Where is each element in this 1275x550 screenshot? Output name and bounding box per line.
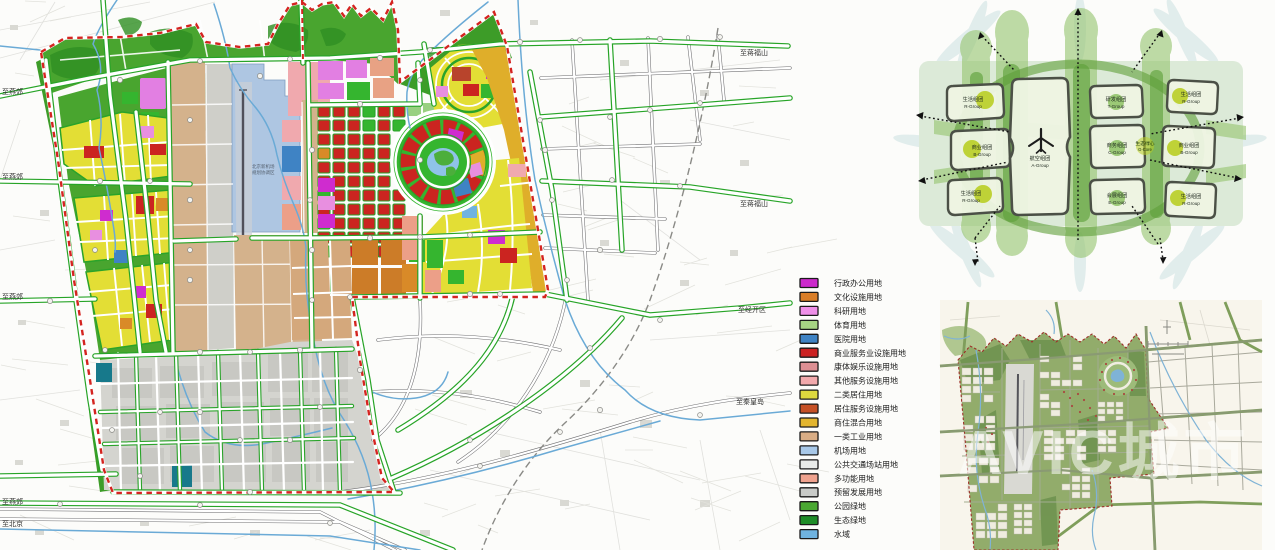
svg-text:康体娱乐设施用地: 康体娱乐设施用地 (834, 362, 898, 372)
svg-text:医院用地: 医院用地 (834, 334, 866, 344)
svg-text:至燕郊: 至燕郊 (2, 497, 23, 506)
svg-text:商业组团: 商业组团 (1179, 141, 1200, 149)
svg-text:R-Group: R-Group (962, 198, 980, 203)
svg-text:商务组团: 商务组团 (1107, 141, 1128, 149)
svg-text:行政办公用地: 行政办公用地 (834, 278, 882, 288)
svg-text:R-Group: R-Group (1182, 99, 1200, 104)
svg-text:至北京: 至北京 (2, 519, 23, 528)
svg-text:E-Group: E-Group (1108, 200, 1126, 205)
svg-text:北京新机场: 北京新机场 (252, 163, 275, 170)
svg-text:会展组团: 会展组团 (1107, 191, 1128, 199)
svg-text:至蒋福山: 至蒋福山 (740, 199, 768, 208)
svg-text:体育用地: 体育用地 (834, 320, 866, 330)
svg-text:科研用地: 科研用地 (834, 306, 866, 316)
svg-text:其他服务设施用地: 其他服务设施用地 (834, 376, 898, 386)
svg-text:居住服务设施用地: 居住服务设施用地 (834, 404, 898, 414)
svg-text:机场用地: 机场用地 (834, 445, 866, 455)
svg-text:商业服务业设施用地: 商业服务业设施用地 (834, 348, 906, 358)
svg-text:预留发展用地: 预留发展用地 (834, 487, 882, 497)
svg-text:R-Group: R-Group (1182, 201, 1200, 206)
svg-text:生活组团: 生活组团 (961, 189, 982, 197)
svg-text:规划协调区: 规划协调区 (252, 169, 275, 176)
svg-text:G-Core: G-Core (1138, 147, 1152, 152)
svg-text:生态绿心: 生态绿心 (1135, 140, 1154, 147)
svg-text:生活组团: 生活组团 (1181, 192, 1202, 200)
svg-text:A-Group: A-Group (1031, 163, 1049, 168)
svg-text:水域: 水域 (834, 529, 850, 539)
svg-text:多功能用地: 多功能用地 (834, 473, 874, 483)
svg-text:至经开区: 至经开区 (738, 305, 766, 314)
svg-text:B-Group: B-Group (973, 152, 991, 157)
svg-text:T-Group: T-Group (1108, 104, 1125, 109)
svg-text:公共交通场站用地: 公共交通场站用地 (834, 459, 898, 469)
svg-text:生活组团: 生活组团 (963, 95, 984, 103)
svg-text:公园绿地: 公园绿地 (834, 501, 866, 511)
svg-text:商业组团: 商业组团 (972, 143, 993, 151)
svg-text:商住混合用地: 商住混合用地 (834, 418, 882, 428)
svg-text:至燕郊: 至燕郊 (2, 172, 23, 181)
svg-text:二类居住用地: 二类居住用地 (834, 390, 882, 400)
svg-text:一类工业用地: 一类工业用地 (834, 431, 882, 441)
svg-text:生态绿地: 生态绿地 (834, 515, 866, 525)
svg-text:航空组团: 航空组团 (1030, 154, 1051, 162)
svg-text:C-Group: C-Group (1108, 150, 1126, 155)
svg-text:至秦皇岛: 至秦皇岛 (736, 397, 764, 406)
svg-text:AVIC城市: AVIC城市 (958, 419, 1250, 488)
svg-text:至燕郊: 至燕郊 (2, 292, 23, 301)
svg-text:生活组团: 生活组团 (1181, 90, 1202, 98)
svg-text:R-Group: R-Group (964, 104, 982, 109)
svg-text:研发组团: 研发组团 (1106, 95, 1127, 103)
svg-text:B-Group: B-Group (1180, 150, 1198, 155)
svg-text:文化设施用地: 文化设施用地 (834, 292, 882, 302)
svg-text:至燕郊: 至燕郊 (2, 87, 23, 96)
svg-text:至蒋福山: 至蒋福山 (740, 48, 768, 57)
